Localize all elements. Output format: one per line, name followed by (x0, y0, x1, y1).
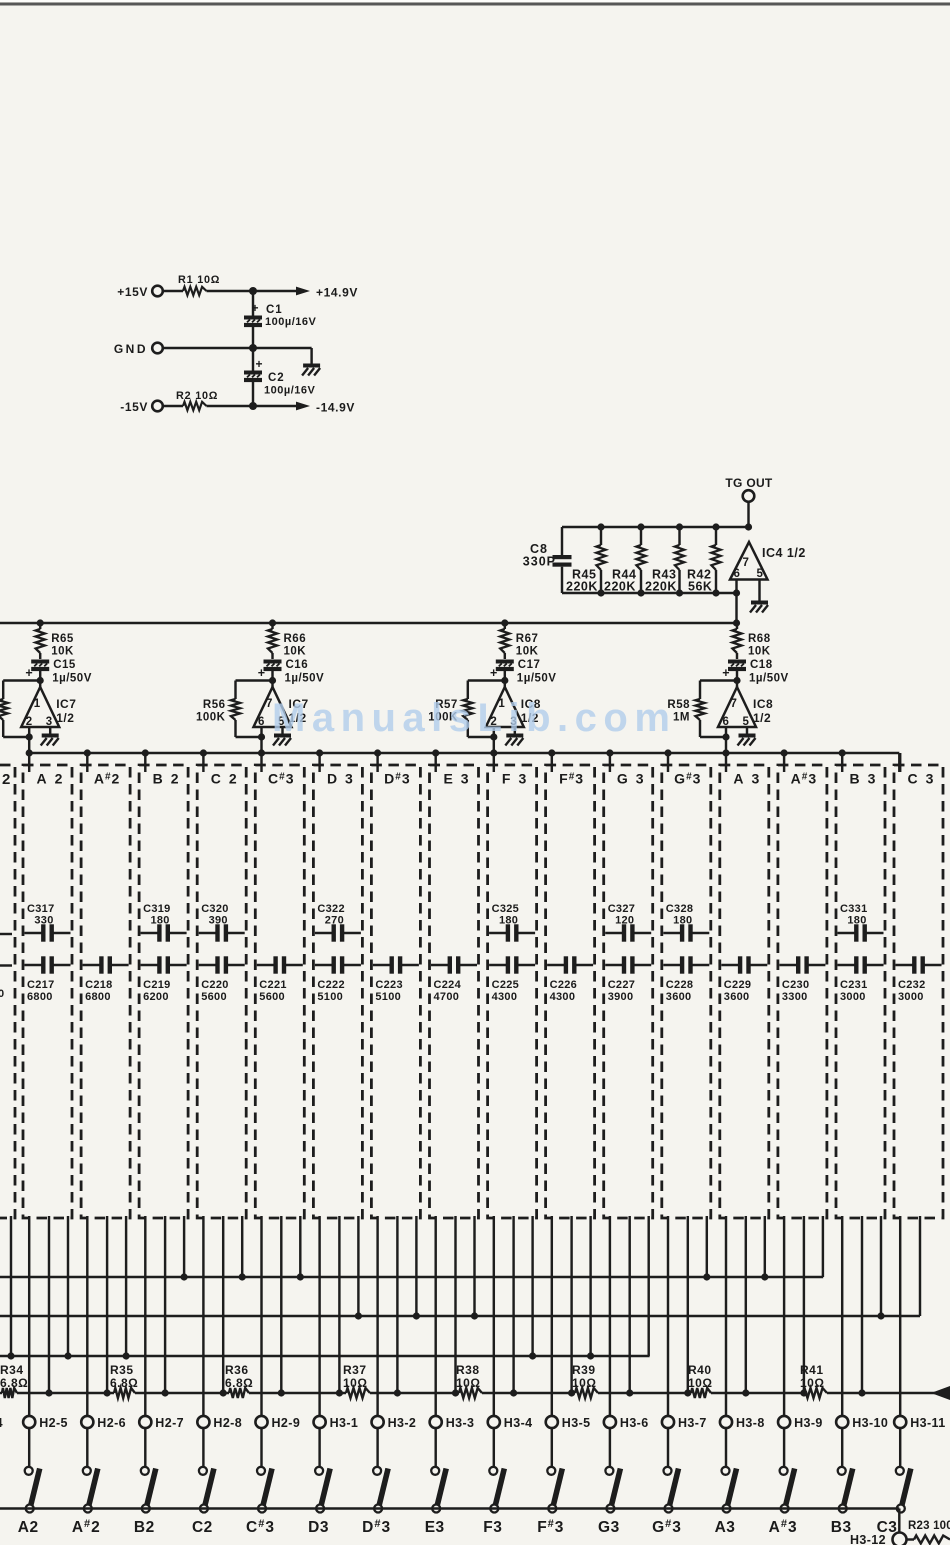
svg-text:10K: 10K (284, 646, 307, 658)
svg-text:6.8Ω: 6.8Ω (225, 1376, 253, 1390)
svg-text:1/2: 1/2 (753, 711, 771, 725)
svg-text:H2-5: H2-5 (39, 1416, 68, 1430)
svg-text:390: 390 (209, 915, 228, 927)
svg-text:10K: 10K (516, 646, 539, 658)
svg-text:D3: D3 (308, 1519, 329, 1536)
svg-text:IC7: IC7 (56, 697, 76, 711)
svg-text:10Ω: 10Ω (800, 1376, 824, 1390)
svg-text:1µ/50V: 1µ/50V (749, 673, 789, 685)
svg-text:R66: R66 (284, 633, 307, 645)
svg-text:H2-9: H2-9 (272, 1416, 301, 1430)
svg-text:H3-9: H3-9 (794, 1416, 823, 1430)
svg-text:5100: 5100 (375, 991, 401, 1003)
svg-text:C2: C2 (268, 372, 285, 384)
svg-text:4300: 4300 (492, 991, 518, 1003)
svg-text:120: 120 (615, 915, 634, 927)
svg-text:10Ω: 10Ω (456, 1376, 480, 1390)
svg-text:ManualsLib.com: ManualsLib.com (272, 696, 676, 740)
svg-text:180: 180 (150, 915, 169, 927)
svg-text:100µ/16V: 100µ/16V (264, 385, 315, 397)
svg-text:H3-8: H3-8 (736, 1416, 765, 1430)
svg-text:6800: 6800 (27, 991, 53, 1003)
svg-text:C331: C331 (840, 903, 868, 915)
svg-text:330P: 330P (523, 555, 556, 569)
svg-text:220K: 220K (566, 580, 598, 594)
svg-text:R39: R39 (572, 1363, 596, 1377)
svg-text:C320: C320 (201, 903, 229, 915)
svg-text:C327: C327 (608, 903, 636, 915)
svg-text:1µ/50V: 1µ/50V (52, 673, 92, 685)
svg-text:C227: C227 (608, 979, 636, 991)
svg-text:R37: R37 (343, 1363, 367, 1377)
svg-text:5100: 5100 (317, 991, 343, 1003)
svg-text:C319: C319 (143, 903, 171, 915)
svg-text:C222: C222 (317, 979, 345, 991)
svg-text:7: 7 (731, 698, 738, 710)
svg-text:6.8Ω: 6.8Ω (110, 1376, 138, 1390)
svg-text:IC8: IC8 (753, 697, 773, 711)
svg-text:6: 6 (723, 716, 730, 728)
svg-text:GND: GND (114, 342, 148, 356)
svg-text:0: 0 (0, 988, 5, 1000)
svg-text:TG OUT: TG OUT (725, 476, 772, 490)
svg-text:B2: B2 (134, 1519, 155, 1536)
svg-text:H2-8: H2-8 (213, 1416, 242, 1430)
svg-text:R41: R41 (800, 1363, 824, 1377)
svg-text:H3-2: H3-2 (388, 1416, 417, 1430)
svg-text:1µ/50V: 1µ/50V (285, 673, 325, 685)
svg-text:C17: C17 (518, 659, 541, 671)
svg-text:10Ω: 10Ω (343, 1376, 367, 1390)
svg-text:H3-4: H3-4 (504, 1416, 533, 1430)
svg-text:10Ω: 10Ω (688, 1376, 712, 1390)
svg-text:C224: C224 (434, 979, 462, 991)
svg-text:B3: B3 (831, 1519, 852, 1536)
svg-text:220K: 220K (604, 580, 636, 594)
svg-text:C2: C2 (211, 771, 245, 787)
svg-text:180: 180 (673, 915, 692, 927)
svg-text:R68: R68 (748, 633, 771, 645)
svg-text:R67: R67 (516, 633, 539, 645)
svg-text:C217: C217 (27, 979, 55, 991)
svg-text:3600: 3600 (666, 991, 692, 1003)
svg-text:330: 330 (34, 915, 53, 927)
svg-text:1µ/50V: 1µ/50V (517, 673, 557, 685)
svg-text:1/2: 1/2 (56, 711, 74, 725)
svg-text:H3-11: H3-11 (910, 1416, 945, 1430)
svg-text:H3-7: H3-7 (678, 1416, 707, 1430)
svg-text:+15V: +15V (117, 285, 148, 299)
svg-text:C230: C230 (782, 979, 810, 991)
svg-text:A3: A3 (715, 1519, 736, 1536)
svg-text:56K: 56K (688, 580, 712, 594)
svg-text:C2: C2 (192, 1519, 213, 1536)
svg-text:-15V: -15V (120, 400, 148, 414)
svg-text:+: + (490, 666, 498, 680)
svg-text:R65: R65 (51, 633, 74, 645)
svg-text:A2: A2 (18, 1519, 39, 1536)
svg-text:3000: 3000 (898, 991, 924, 1003)
svg-text:C16: C16 (286, 659, 309, 671)
svg-text:6.8Ω: 6.8Ω (0, 1376, 28, 1390)
svg-text:+: + (251, 301, 259, 315)
svg-text:2: 2 (2, 771, 11, 788)
svg-text:H3-3: H3-3 (446, 1416, 475, 1430)
svg-text:C18: C18 (750, 659, 773, 671)
svg-text:D3: D3 (327, 771, 361, 787)
svg-text:5: 5 (757, 568, 764, 580)
svg-text:C232: C232 (898, 979, 926, 991)
svg-text:+14.9V: +14.9V (316, 286, 358, 300)
svg-text:6200: 6200 (143, 991, 169, 1003)
svg-text:E3: E3 (425, 1519, 445, 1536)
svg-text:2: 2 (26, 716, 33, 728)
svg-text:3900: 3900 (608, 991, 634, 1003)
svg-text:C3: C3 (908, 771, 942, 787)
svg-text:-4: -4 (0, 1416, 3, 1430)
svg-text:C317: C317 (27, 903, 55, 915)
svg-text:H3-12: H3-12 (850, 1533, 886, 1545)
svg-text:G3: G3 (598, 1519, 620, 1536)
svg-text:3000: 3000 (840, 991, 866, 1003)
svg-text:6: 6 (258, 716, 265, 728)
svg-text:H3-5: H3-5 (562, 1416, 591, 1430)
svg-text:10Ω: 10Ω (572, 1376, 596, 1390)
svg-text:C223: C223 (375, 979, 403, 991)
svg-text:R38: R38 (456, 1363, 480, 1377)
svg-text:R1 10Ω: R1 10Ω (178, 274, 220, 286)
svg-text:C231: C231 (840, 979, 868, 991)
svg-text:C15: C15 (53, 659, 76, 671)
svg-text:R23 100: R23 100 (908, 1520, 950, 1532)
svg-text:C218: C218 (85, 979, 113, 991)
svg-text:H2-7: H2-7 (155, 1416, 184, 1430)
svg-text:C325: C325 (492, 903, 519, 915)
svg-text:6: 6 (734, 568, 741, 580)
svg-text:C328: C328 (666, 903, 694, 915)
svg-text:4700: 4700 (434, 991, 460, 1003)
svg-text:-14.9V: -14.9V (316, 401, 355, 415)
svg-text:B3: B3 (850, 771, 884, 787)
svg-text:100µ/16V: 100µ/16V (265, 316, 316, 328)
svg-text:R56: R56 (203, 699, 226, 711)
svg-text:3: 3 (46, 716, 53, 728)
svg-text:7: 7 (743, 557, 750, 569)
svg-text:10K: 10K (51, 646, 74, 658)
svg-text:H3-6: H3-6 (620, 1416, 649, 1430)
svg-text:C219: C219 (143, 979, 171, 991)
svg-text:C221: C221 (259, 979, 287, 991)
svg-text:1: 1 (34, 698, 41, 710)
svg-text:180: 180 (847, 915, 866, 927)
svg-text:R35: R35 (110, 1363, 134, 1377)
svg-text:H3-1: H3-1 (330, 1416, 359, 1430)
svg-text:F3: F3 (502, 771, 534, 787)
svg-text:+: + (258, 666, 266, 680)
svg-text:+: + (722, 666, 730, 680)
svg-text:3600: 3600 (724, 991, 750, 1003)
svg-text:A2: A2 (37, 771, 71, 787)
svg-text:100K: 100K (196, 712, 226, 724)
svg-text:4300: 4300 (550, 991, 576, 1003)
svg-text:C228: C228 (666, 979, 694, 991)
svg-text:F3: F3 (483, 1519, 502, 1536)
svg-text:C1: C1 (266, 304, 283, 316)
svg-text:220K: 220K (645, 580, 677, 594)
svg-text:C220: C220 (201, 979, 229, 991)
svg-text:E3: E3 (443, 771, 476, 787)
svg-text:H2-6: H2-6 (97, 1416, 126, 1430)
svg-text:10K: 10K (748, 646, 771, 658)
svg-text:5: 5 (743, 716, 750, 728)
svg-text:+: + (255, 357, 263, 371)
svg-text:270: 270 (325, 915, 344, 927)
svg-text:C322: C322 (317, 903, 345, 915)
svg-text:R34: R34 (0, 1363, 24, 1377)
svg-text:6800: 6800 (85, 991, 111, 1003)
svg-text:R36: R36 (225, 1363, 249, 1377)
svg-text:R2 10Ω: R2 10Ω (176, 390, 218, 402)
svg-text:C226: C226 (550, 979, 578, 991)
svg-text:B2: B2 (153, 771, 187, 787)
svg-text:IC4 1/2: IC4 1/2 (762, 546, 806, 560)
svg-text:C225: C225 (492, 979, 519, 991)
svg-text:180: 180 (499, 915, 518, 927)
svg-text:C229: C229 (724, 979, 752, 991)
svg-text:A3: A3 (733, 771, 767, 787)
svg-text:H3-10: H3-10 (852, 1416, 888, 1430)
svg-text:G3: G3 (617, 771, 652, 787)
svg-text:5600: 5600 (259, 991, 285, 1003)
svg-text:R40: R40 (688, 1363, 712, 1377)
svg-text:5600: 5600 (201, 991, 227, 1003)
svg-text:+: + (25, 666, 33, 680)
svg-text:3300: 3300 (782, 991, 808, 1003)
